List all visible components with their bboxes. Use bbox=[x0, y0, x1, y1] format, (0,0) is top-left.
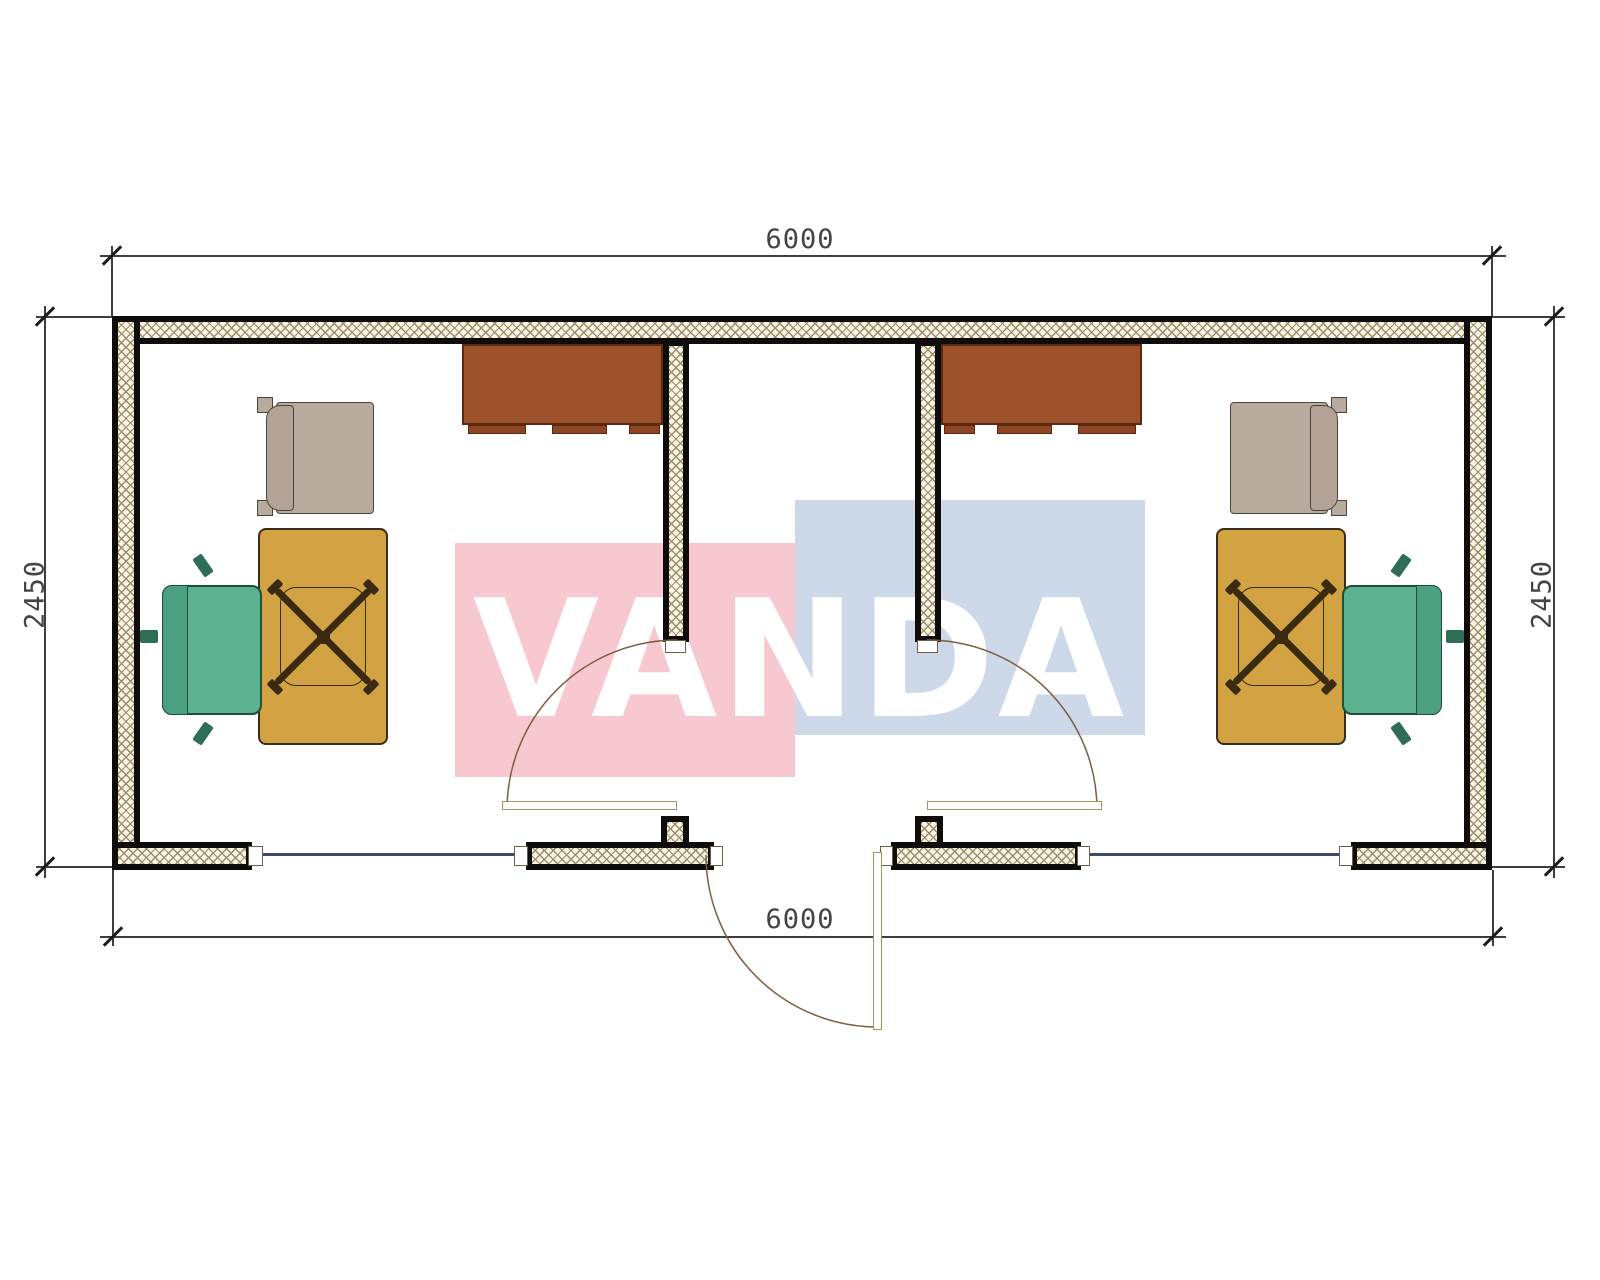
interior-door-leaf-left bbox=[502, 801, 677, 810]
window-frame bbox=[1339, 846, 1353, 866]
interior-door-frame-right bbox=[917, 640, 938, 653]
guest-armchair-right-back bbox=[1310, 405, 1338, 511]
window-right bbox=[1089, 853, 1342, 856]
office-chair-left-back bbox=[162, 585, 188, 715]
window-left bbox=[263, 853, 517, 856]
wall-bottom-corner-left bbox=[112, 842, 252, 870]
office-chair-right-caster bbox=[1446, 630, 1464, 643]
wall-bottom-corner-right bbox=[1351, 842, 1492, 870]
cabinet-right bbox=[941, 344, 1142, 425]
dim-label-left: 2450 bbox=[20, 535, 51, 655]
office-chair-left-caster bbox=[192, 553, 214, 577]
window-frame bbox=[248, 846, 263, 866]
office-chair-left-caster bbox=[140, 630, 158, 643]
office-chair-left-base bbox=[257, 571, 389, 703]
cabinet-right-foot bbox=[997, 425, 1052, 434]
door-side-frame bbox=[710, 846, 723, 866]
wall-right bbox=[1464, 316, 1492, 870]
wall-left bbox=[112, 316, 140, 870]
partition-right bbox=[915, 340, 941, 642]
dim-label-top: 6000 bbox=[740, 224, 860, 255]
dim-label-right: 2450 bbox=[1527, 535, 1558, 655]
watermark-text: VANDA bbox=[395, 590, 1205, 730]
floor-plan-canvas: VANDA 6000 6000 2450 bbox=[0, 0, 1600, 1280]
window-frame bbox=[1077, 846, 1090, 866]
interior-door-frame-left bbox=[665, 640, 686, 653]
window-frame bbox=[514, 846, 528, 866]
partition-left bbox=[663, 340, 689, 642]
interior-door-leaf-right bbox=[927, 801, 1102, 810]
cabinet-right-foot bbox=[1078, 425, 1136, 434]
cabinet-left-foot bbox=[629, 425, 660, 434]
dim-line-bottom bbox=[100, 936, 1506, 938]
dim-label-bottom: 6000 bbox=[740, 904, 860, 935]
guest-armchair-left-back bbox=[266, 405, 294, 511]
wall-bottom-mid-left bbox=[526, 842, 714, 870]
wall-top bbox=[112, 316, 1492, 344]
office-chair-right-base bbox=[1215, 571, 1347, 703]
cabinet-right-foot bbox=[944, 425, 975, 434]
cabinet-left-foot bbox=[468, 425, 526, 434]
office-chair-right-caster bbox=[1390, 553, 1412, 577]
cabinet-left-foot bbox=[552, 425, 607, 434]
entrance-door-leaf bbox=[873, 852, 882, 1030]
office-chair-left-caster bbox=[192, 721, 214, 745]
office-chair-right-caster bbox=[1390, 721, 1412, 745]
cabinet-left bbox=[462, 344, 663, 425]
office-chair-right-back bbox=[1416, 585, 1442, 715]
dim-line-top bbox=[100, 255, 1506, 257]
wall-bottom-mid-right bbox=[891, 842, 1081, 870]
